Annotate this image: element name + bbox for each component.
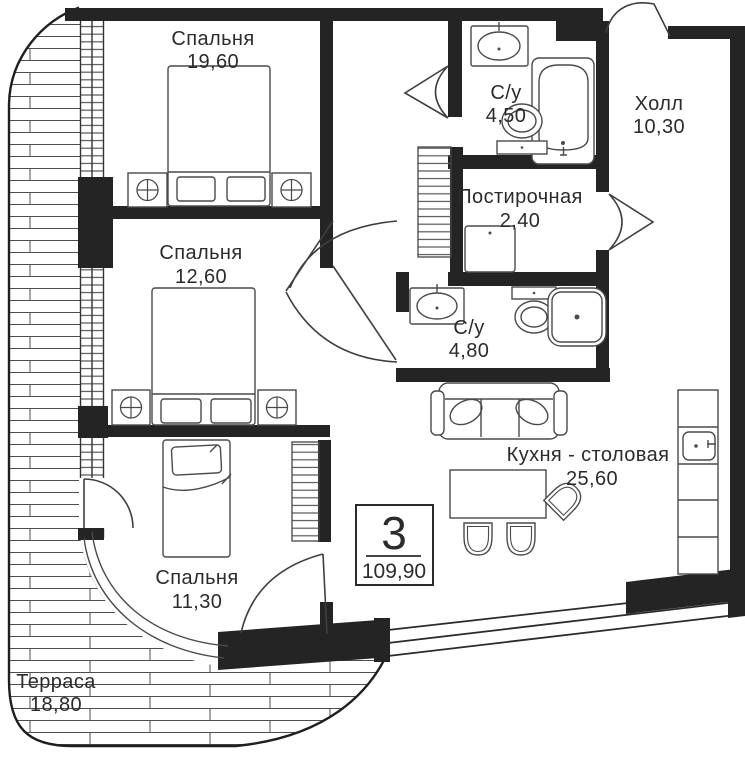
room-area: 19,60 <box>187 51 239 73</box>
sink-icon-bathroom-1 <box>471 22 528 66</box>
room-name: С/у <box>490 82 521 104</box>
bed-icon-bedroom-2 <box>152 288 255 425</box>
room-name: Спальня <box>159 242 242 264</box>
room-name: С/у <box>453 317 484 339</box>
ladder-icon <box>292 442 319 541</box>
info-box: 3 109,90 <box>356 505 433 585</box>
kitchen-cabinets-icon <box>678 390 718 574</box>
room-area: 11,30 <box>172 591 223 613</box>
sofa-icon <box>431 383 567 439</box>
room-name: Холл <box>635 93 684 115</box>
room-area: 25,60 <box>566 468 618 490</box>
washing-machine-icon <box>465 226 515 272</box>
room-name: Спальня <box>155 567 238 589</box>
total-area: 109,90 <box>362 560 426 583</box>
room-label-bathroom-2: С/у 4,80 <box>449 317 490 362</box>
room-area: 18,80 <box>30 694 82 716</box>
room-name: Спальня <box>171 28 254 50</box>
bed-icon-bedroom-3 <box>163 440 231 557</box>
floor-plan: Спальня 19,60 С/у 4,50 Холл 10,30 Постир… <box>0 0 745 774</box>
window-band-left <box>79 21 105 538</box>
room-label-hall: Холл 10,30 <box>633 93 685 138</box>
room-name: Терраса <box>16 671 96 693</box>
stairs-icon <box>418 147 451 257</box>
room-area: 2,40 <box>500 210 541 232</box>
rooms-count: 3 <box>381 507 407 559</box>
room-area: 4,50 <box>486 105 527 127</box>
room-area: 4,80 <box>449 340 490 362</box>
room-name: Кухня - столовая <box>507 444 670 466</box>
bed-icon-bedroom-1 <box>168 66 270 206</box>
room-label-bathroom-1: С/у 4,50 <box>486 82 527 127</box>
room-area: 12,60 <box>175 266 227 288</box>
room-area: 10,30 <box>633 116 685 138</box>
room-name: Постирочная <box>457 186 582 208</box>
dining-table-icon <box>450 470 546 518</box>
shower-icon <box>548 288 606 346</box>
floor-plan-canvas: Спальня 19,60 С/у 4,50 Холл 10,30 Постир… <box>0 0 745 774</box>
